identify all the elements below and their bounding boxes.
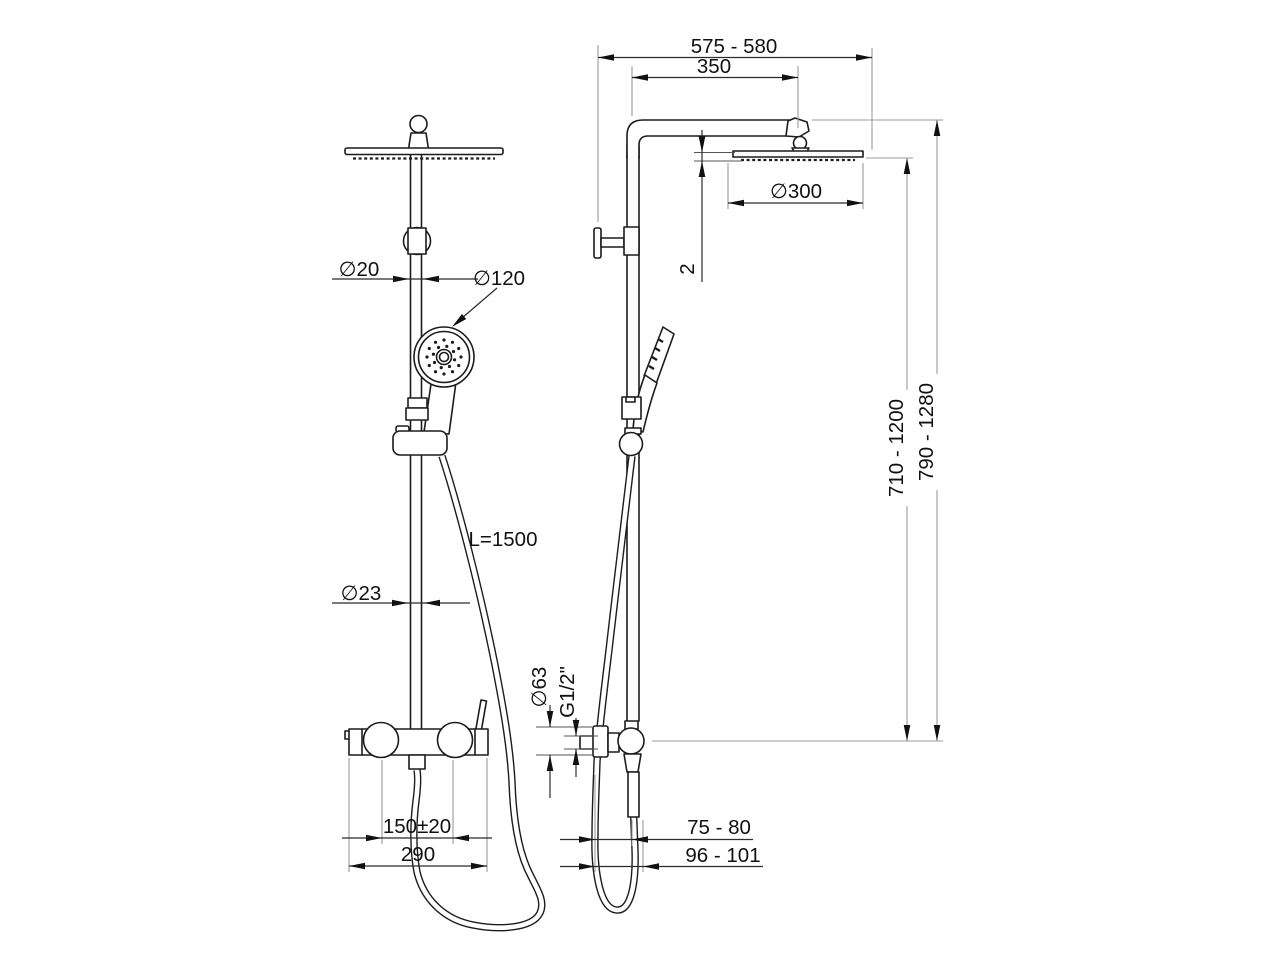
dim-hand-shower-diameter: ∅120 — [473, 267, 525, 290]
mixer-valve-front — [345, 700, 488, 769]
dim-height-range-outer: 790 - 1280 — [915, 383, 938, 481]
rain-head-side — [733, 151, 863, 160]
outlet-tube — [628, 772, 639, 817]
wall-bracket-side — [594, 227, 639, 258]
dim-arm-projection: 350 — [697, 55, 731, 78]
dim-hose-length: L=1500 — [469, 528, 538, 551]
dim-height-range-inner: 710 - 1200 — [885, 399, 908, 497]
side-view — [580, 118, 863, 910]
shower-hose-side — [595, 456, 635, 910]
dim-mixer-width: 290 — [401, 843, 435, 866]
drawing-page: ∅20 ∅120 ∅23 L=1500 150±20 290 575 - 580… — [0, 0, 1280, 960]
dim-head-thickness: 2 — [676, 263, 699, 274]
dim-connection-thread: G1/2" — [556, 666, 579, 718]
slider-clamp-front — [404, 228, 431, 255]
right-knob — [438, 723, 473, 758]
wall-connection-side — [580, 721, 644, 817]
rain-head-front — [345, 116, 503, 159]
dim-inlet-spacing: 150±20 — [383, 815, 451, 838]
dim-wall-offset-pole: 75 - 80 — [687, 816, 751, 839]
hand-shower-front — [393, 327, 474, 455]
dim-pole-upper-diameter: ∅20 — [339, 258, 380, 281]
technical-drawing: ∅20 ∅120 ∅23 L=1500 150±20 290 575 - 580… — [0, 0, 1280, 960]
front-view — [345, 116, 542, 928]
dim-escutcheon-diameter: ∅63 — [528, 667, 551, 708]
dim-pole-lower-diameter: ∅23 — [341, 582, 382, 605]
dim-wall-offset-hose: 96 - 101 — [685, 844, 760, 867]
hose-outlet — [409, 755, 425, 769]
left-knob — [364, 723, 399, 758]
valve-body — [618, 728, 644, 754]
dim-head-diameter: ∅300 — [770, 180, 822, 203]
escutcheon — [593, 726, 608, 757]
